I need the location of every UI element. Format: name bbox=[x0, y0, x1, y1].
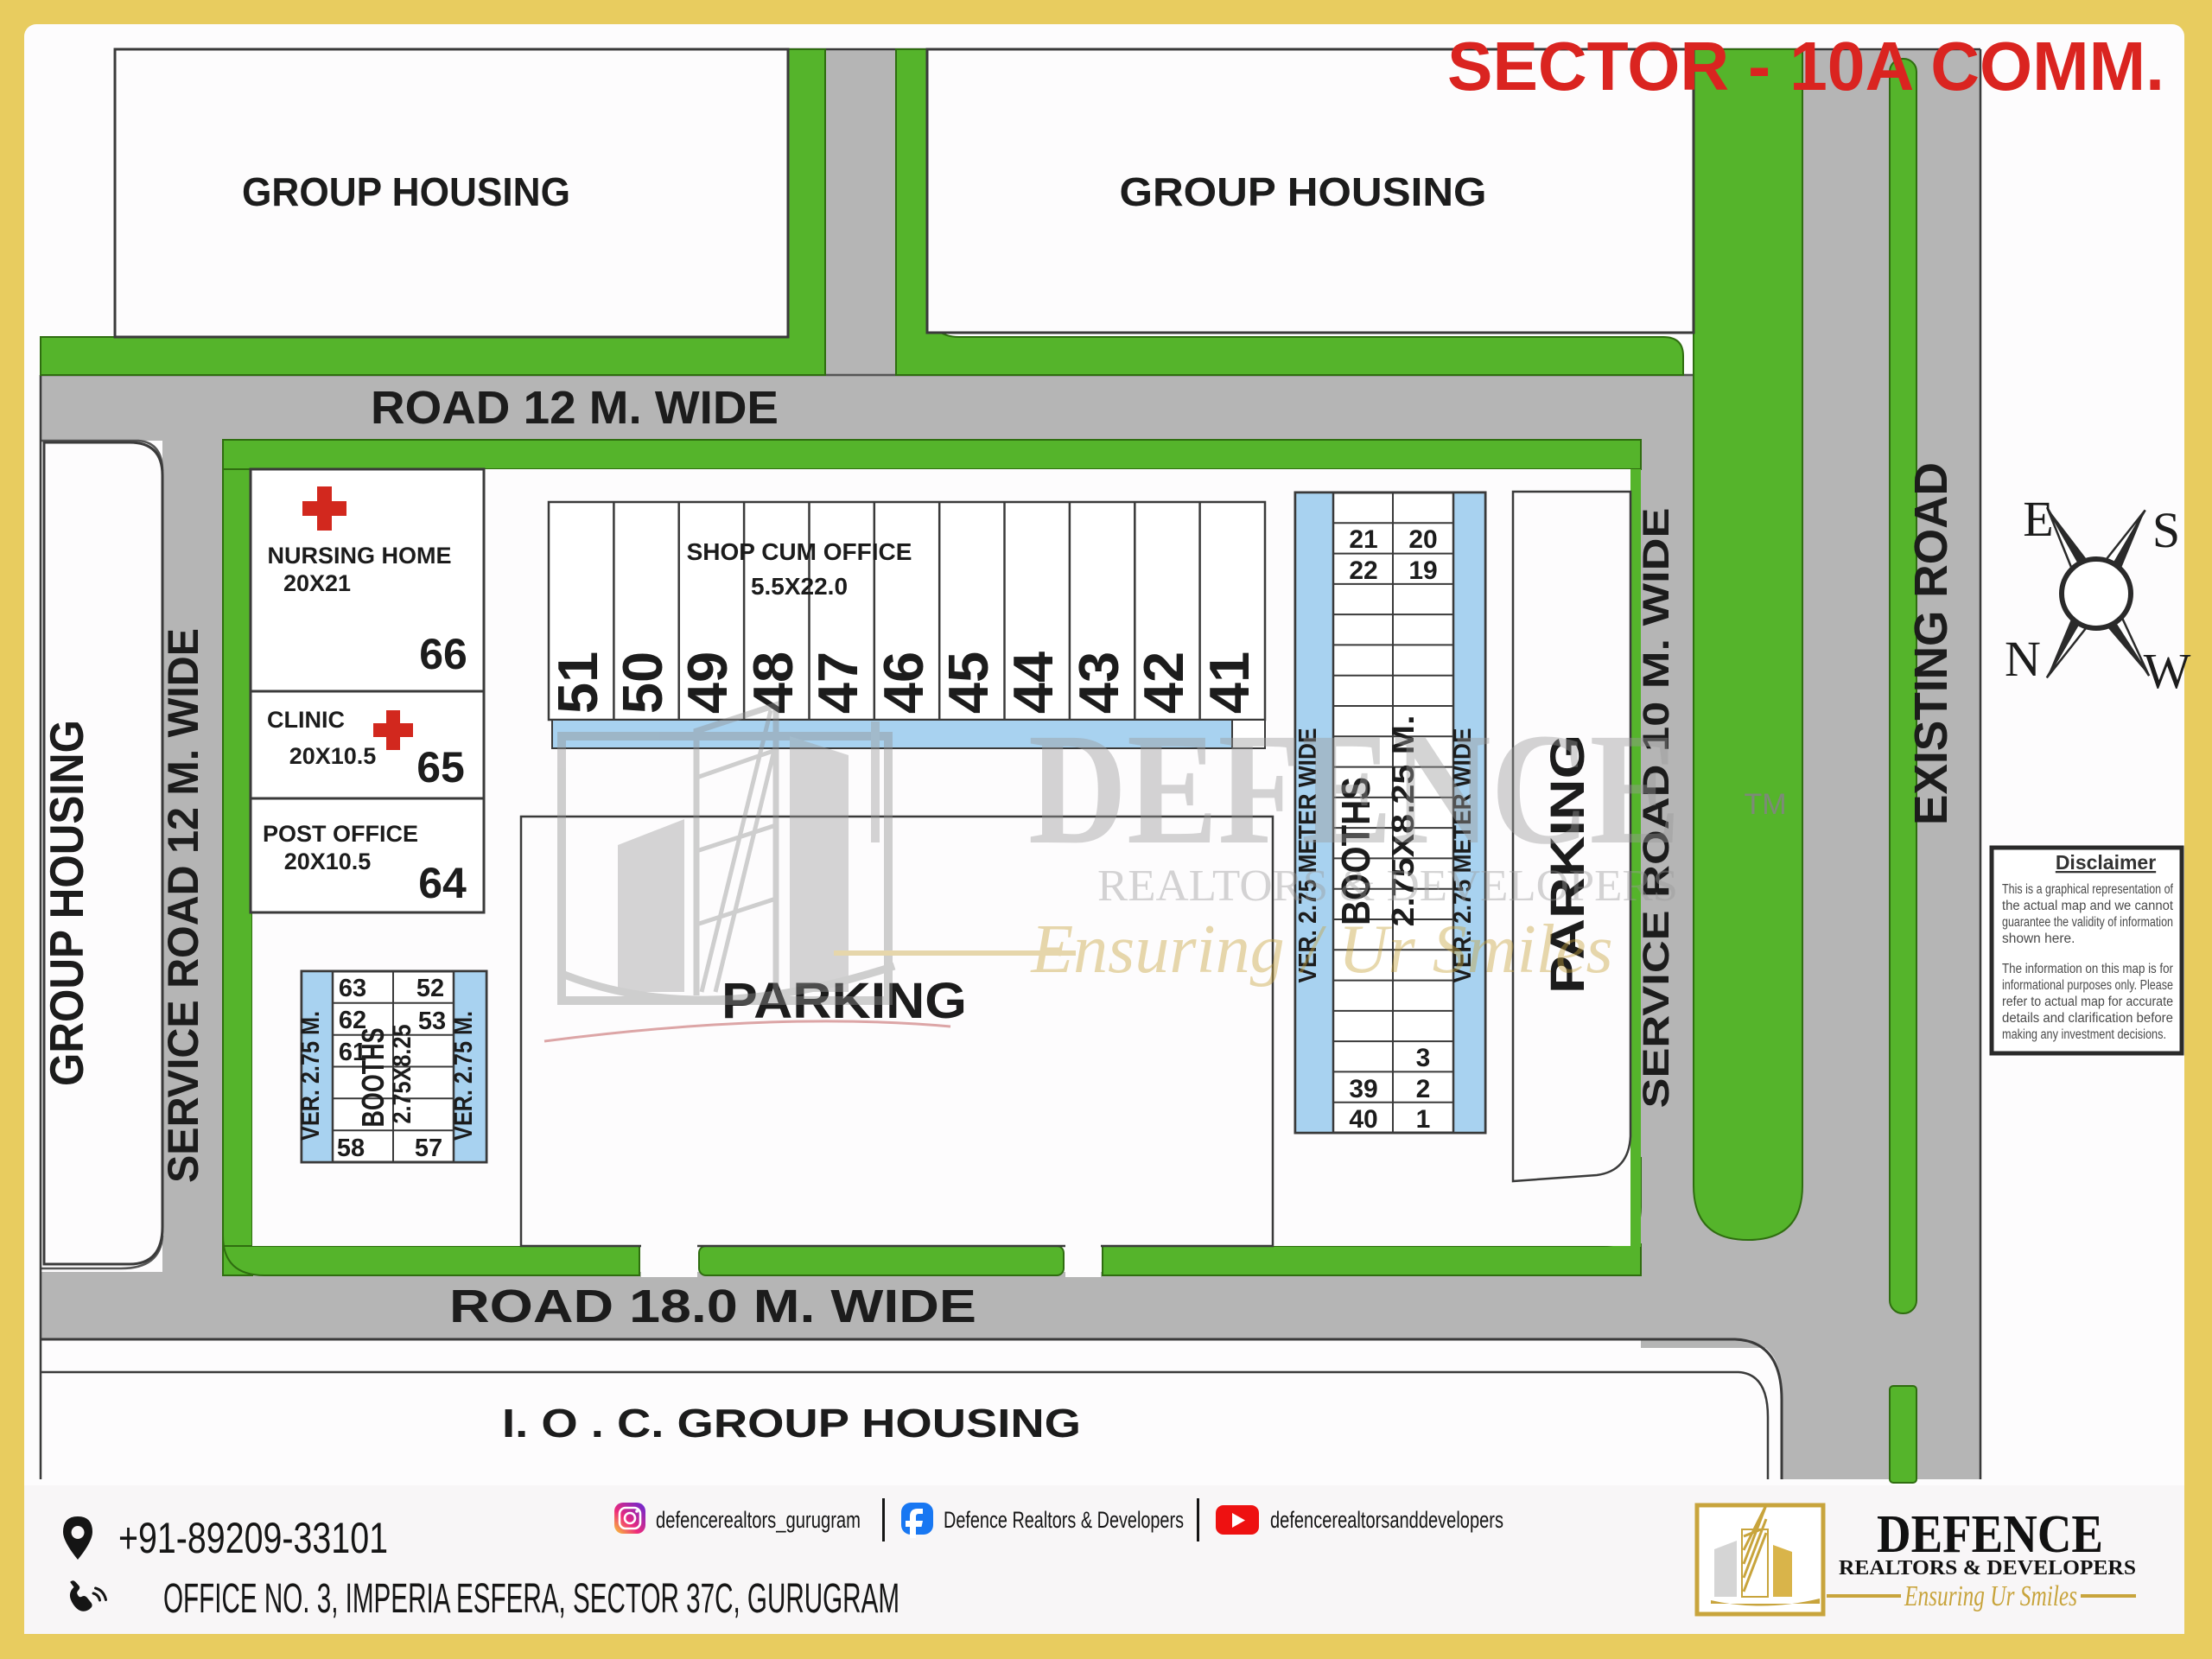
svg-text:E: E bbox=[2023, 491, 2053, 547]
svg-text:SHOP CUM OFFICE: SHOP CUM OFFICE bbox=[687, 538, 912, 565]
svg-text:50: 50 bbox=[611, 652, 674, 714]
svg-text:refer to actual map for accura: refer to actual map for accurate bbox=[2002, 995, 2173, 1009]
svg-text:making any investment decision: making any investment decisions. bbox=[2002, 1027, 2166, 1042]
svg-text:62: 62 bbox=[339, 1007, 366, 1034]
svg-text:53: 53 bbox=[418, 1007, 446, 1035]
svg-text:I. O . C. GROUP HOUSING: I. O . C. GROUP HOUSING bbox=[502, 1401, 1081, 1446]
svg-text:57: 57 bbox=[415, 1135, 442, 1162]
svg-text:N: N bbox=[2005, 631, 2041, 687]
svg-text:This is a graphical representa: This is a graphical representation of bbox=[2002, 882, 2174, 897]
svg-text:19: 19 bbox=[1408, 556, 1437, 585]
svg-text:NURSING HOME: NURSING HOME bbox=[267, 543, 451, 569]
svg-text:GROUP HOUSING: GROUP HOUSING bbox=[242, 169, 570, 214]
svg-text:EXISTING ROAD: EXISTING ROAD bbox=[1905, 462, 1957, 825]
svg-text:informational purposes only. P: informational purposes only. Please bbox=[2002, 978, 2173, 993]
svg-text:REALTORS & DEVELOPERS: REALTORS & DEVELOPERS bbox=[1839, 1557, 2136, 1580]
svg-text:ROAD 18.0 M. WIDE: ROAD 18.0 M. WIDE bbox=[449, 1281, 976, 1332]
svg-text:Defence Realtors & Developers: Defence Realtors & Developers bbox=[944, 1507, 1184, 1533]
svg-text:GROUP HOUSING: GROUP HOUSING bbox=[40, 720, 93, 1086]
svg-text:SECTOR - 10A COMM.: SECTOR - 10A COMM. bbox=[1447, 28, 2164, 105]
svg-text:S: S bbox=[2152, 502, 2180, 558]
svg-text:47: 47 bbox=[806, 652, 869, 714]
svg-text:OFFICE NO. 3, IMPERIA ESFERA,: OFFICE NO. 3, IMPERIA ESFERA, SECTOR 37C… bbox=[163, 1576, 899, 1622]
svg-text:Disclaimer: Disclaimer bbox=[2056, 851, 2156, 874]
svg-text:66: 66 bbox=[419, 630, 467, 678]
svg-text:defencerealtors_gurugram: defencerealtors_gurugram bbox=[656, 1507, 861, 1533]
svg-text:Ensuring Ur Smiles: Ensuring Ur Smiles bbox=[1904, 1580, 2077, 1612]
svg-text:64: 64 bbox=[418, 859, 467, 907]
svg-text:W: W bbox=[2144, 643, 2191, 699]
svg-text:20X21: 20X21 bbox=[283, 570, 351, 596]
svg-text:VER. 2.75 M.: VER. 2.75 M. bbox=[449, 1011, 478, 1141]
svg-text:POST OFFICE: POST OFFICE bbox=[263, 821, 418, 847]
svg-text:the actual map and we cannot: the actual map and we cannot bbox=[2002, 899, 2174, 913]
svg-text:details and clarification befo: details and clarification before bbox=[2002, 1011, 2173, 1026]
svg-text:GROUP HOUSING: GROUP HOUSING bbox=[1120, 169, 1487, 214]
svg-text:2.75X8.25: 2.75X8.25 bbox=[388, 1025, 416, 1124]
svg-text:SERVICE ROAD 12 M. WIDE: SERVICE ROAD 12 M. WIDE bbox=[159, 628, 207, 1183]
svg-text:40: 40 bbox=[1349, 1105, 1377, 1134]
svg-text:The information on this map is: The information on this map is for bbox=[2002, 962, 2173, 976]
svg-text:45: 45 bbox=[937, 652, 1000, 714]
svg-text:20: 20 bbox=[1408, 525, 1437, 554]
svg-text:51: 51 bbox=[546, 652, 609, 714]
svg-text:46: 46 bbox=[872, 652, 935, 714]
svg-text:CLINIC: CLINIC bbox=[267, 707, 345, 733]
svg-text:REALTORS & DEVELOPERS: REALTORS & DEVELOPERS bbox=[1097, 861, 1678, 911]
svg-text:guarantee the validity of info: guarantee the validity of information bbox=[2002, 915, 2173, 930]
svg-text:63: 63 bbox=[339, 975, 366, 1002]
svg-text:1: 1 bbox=[1416, 1105, 1431, 1134]
svg-text:VER. 2.75 M.: VER. 2.75 M. bbox=[296, 1011, 325, 1141]
svg-text:20X10.5: 20X10.5 bbox=[289, 743, 377, 769]
svg-text:DEFENCE: DEFENCE bbox=[1028, 701, 1681, 878]
svg-text:ROAD 12 M. WIDE: ROAD 12 M. WIDE bbox=[371, 382, 779, 434]
svg-text:Ensuring / Ur Smiles: Ensuring / Ur Smiles bbox=[1030, 912, 1612, 988]
svg-text:39: 39 bbox=[1349, 1075, 1377, 1103]
svg-text:20X10.5: 20X10.5 bbox=[284, 849, 372, 874]
svg-text:2: 2 bbox=[1416, 1075, 1431, 1103]
svg-text:22: 22 bbox=[1349, 556, 1377, 585]
svg-text:TM: TM bbox=[1744, 788, 1786, 821]
svg-text:DEFENCE: DEFENCE bbox=[1877, 1505, 2103, 1564]
svg-text:65: 65 bbox=[416, 743, 465, 791]
svg-text:shown here.: shown here. bbox=[2002, 931, 2075, 946]
svg-text:5.5X22.0: 5.5X22.0 bbox=[751, 573, 848, 600]
svg-text:21: 21 bbox=[1349, 525, 1377, 554]
svg-text:49: 49 bbox=[676, 652, 739, 714]
svg-text:defencerealtorsanddevelopers: defencerealtorsanddevelopers bbox=[1270, 1507, 1503, 1533]
svg-text:61: 61 bbox=[339, 1039, 366, 1066]
svg-text:3: 3 bbox=[1416, 1044, 1431, 1072]
svg-text:+91-89209-33101: +91-89209-33101 bbox=[118, 1514, 388, 1562]
svg-text:52: 52 bbox=[416, 975, 444, 1002]
svg-text:58: 58 bbox=[337, 1135, 365, 1162]
